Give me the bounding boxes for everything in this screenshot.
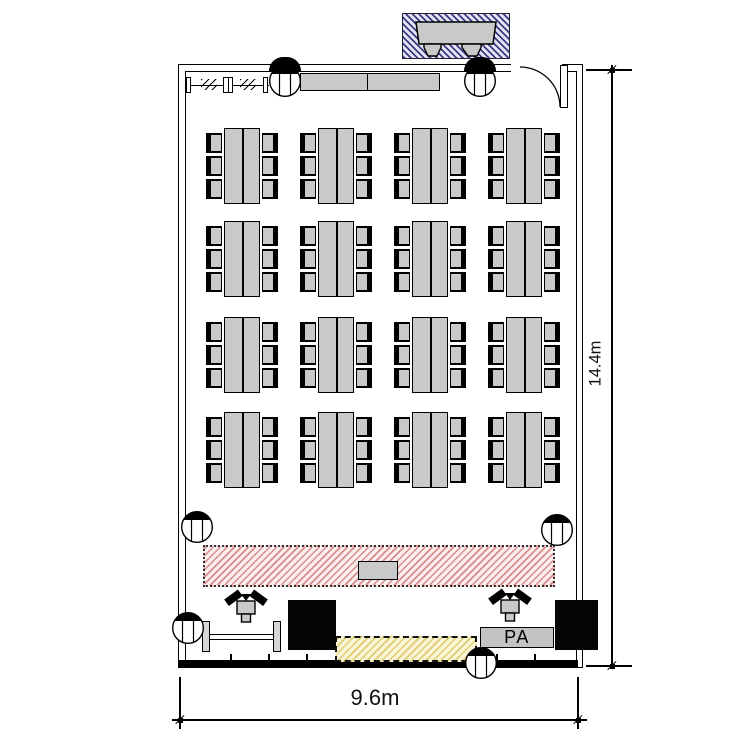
banquet-table <box>412 221 448 297</box>
chair <box>488 440 504 460</box>
chair <box>206 463 222 483</box>
chair <box>262 440 278 460</box>
chair <box>450 179 466 199</box>
round-fixture <box>171 611 205 645</box>
round-fixture <box>463 64 497 98</box>
chair <box>394 179 410 199</box>
screen-divider <box>367 74 368 90</box>
chair <box>262 179 278 199</box>
chair <box>394 440 410 460</box>
pa-system-box: PA <box>480 627 554 648</box>
chair <box>544 272 560 292</box>
chair <box>206 272 222 292</box>
chair <box>262 322 278 342</box>
chair <box>300 226 316 246</box>
chair <box>206 179 222 199</box>
wall-screen <box>300 73 440 91</box>
banquet-table <box>318 221 354 297</box>
chair <box>450 417 466 437</box>
partition-mid-post <box>223 77 233 93</box>
chair <box>544 417 560 437</box>
chair <box>262 368 278 388</box>
equipment-box <box>555 600 598 650</box>
table-group <box>224 317 260 393</box>
chair <box>450 440 466 460</box>
chair <box>356 226 372 246</box>
dim-endpoint <box>610 68 615 73</box>
table-group <box>412 221 448 297</box>
banquet-table <box>412 128 448 204</box>
chair <box>356 179 372 199</box>
table-group <box>412 128 448 204</box>
chair <box>488 249 504 269</box>
chair <box>262 249 278 269</box>
rack-bar <box>208 634 276 640</box>
equipment-box <box>288 600 336 650</box>
chair <box>488 133 504 153</box>
chair <box>488 463 504 483</box>
dim-endpoint <box>610 664 615 669</box>
chair <box>488 368 504 388</box>
stage-table <box>358 561 398 580</box>
chair <box>450 249 466 269</box>
chair <box>394 463 410 483</box>
dance-floor-zone <box>335 636 477 662</box>
chair <box>356 440 372 460</box>
chair <box>356 156 372 176</box>
chair <box>394 249 410 269</box>
chair <box>488 345 504 365</box>
chair <box>206 156 222 176</box>
chair <box>450 156 466 176</box>
chair <box>394 272 410 292</box>
partition-hatch-mark <box>240 79 256 90</box>
chair <box>262 156 278 176</box>
chair <box>300 156 316 176</box>
banquet-table <box>224 412 260 488</box>
table-group <box>224 128 260 204</box>
projector-equipment <box>402 13 510 59</box>
chair <box>544 322 560 342</box>
table-group <box>318 412 354 488</box>
chair <box>356 368 372 388</box>
chair <box>300 249 316 269</box>
chair <box>488 226 504 246</box>
chair <box>544 368 560 388</box>
table-group <box>506 128 542 204</box>
chair <box>300 417 316 437</box>
wall-tick <box>306 654 308 661</box>
pa-label: PA <box>504 627 530 648</box>
floor-plan: PA <box>0 0 750 750</box>
dim-line-height <box>611 65 612 667</box>
wall-tick <box>534 654 536 661</box>
chair <box>300 368 316 388</box>
chair <box>394 133 410 153</box>
table-group <box>412 317 448 393</box>
table-group <box>318 128 354 204</box>
round-fixture <box>180 510 214 544</box>
table-group <box>318 317 354 393</box>
chair <box>356 272 372 292</box>
chair <box>450 368 466 388</box>
door-swing-arc <box>514 60 566 112</box>
chair <box>356 345 372 365</box>
chair <box>300 179 316 199</box>
banquet-table <box>506 128 542 204</box>
partition-hatch-mark <box>201 79 217 90</box>
chair <box>300 272 316 292</box>
round-fixture <box>268 64 302 98</box>
chair <box>450 226 466 246</box>
chair <box>300 133 316 153</box>
chair <box>394 226 410 246</box>
round-fixture <box>540 513 574 547</box>
chair <box>450 133 466 153</box>
chair <box>262 417 278 437</box>
chair <box>544 249 560 269</box>
chair <box>544 440 560 460</box>
chair <box>262 133 278 153</box>
table-group <box>224 221 260 297</box>
chair <box>450 322 466 342</box>
chair <box>488 156 504 176</box>
table-group <box>506 412 542 488</box>
chair <box>394 322 410 342</box>
chair <box>300 463 316 483</box>
table-group <box>506 221 542 297</box>
chair <box>488 322 504 342</box>
chair <box>356 249 372 269</box>
chair <box>488 179 504 199</box>
wall-tick <box>268 654 270 661</box>
chair <box>206 226 222 246</box>
round-fixture <box>464 646 498 680</box>
chair <box>300 440 316 460</box>
wall-tick <box>230 654 232 661</box>
chair <box>356 322 372 342</box>
chair <box>206 417 222 437</box>
stage-speaker <box>488 588 532 624</box>
chair <box>450 345 466 365</box>
table-group <box>412 412 448 488</box>
chair <box>300 322 316 342</box>
dim-endpoint <box>576 718 581 723</box>
chair <box>544 345 560 365</box>
chair <box>300 345 316 365</box>
chair <box>262 345 278 365</box>
chair <box>394 156 410 176</box>
chair <box>206 133 222 153</box>
chair <box>206 249 222 269</box>
banquet-table <box>318 317 354 393</box>
chair <box>544 156 560 176</box>
table-group <box>506 317 542 393</box>
banquet-table <box>224 317 260 393</box>
chair <box>488 272 504 292</box>
chair <box>450 272 466 292</box>
rack-post <box>273 621 281 652</box>
chair <box>206 345 222 365</box>
banquet-table <box>224 128 260 204</box>
dim-line-width <box>172 719 587 720</box>
chair <box>262 226 278 246</box>
chair <box>544 226 560 246</box>
chair <box>450 463 466 483</box>
banquet-table <box>412 412 448 488</box>
chair <box>356 133 372 153</box>
chair <box>394 368 410 388</box>
chair <box>356 417 372 437</box>
chair <box>544 133 560 153</box>
banquet-table <box>224 221 260 297</box>
chair <box>206 368 222 388</box>
chair <box>206 440 222 460</box>
chair <box>206 322 222 342</box>
stage-speaker <box>224 589 268 625</box>
chair <box>394 345 410 365</box>
chair <box>356 463 372 483</box>
dim-endpoint <box>178 718 183 723</box>
chair <box>488 417 504 437</box>
banquet-table <box>506 317 542 393</box>
banquet-table <box>318 412 354 488</box>
room-width-label: 9.6m <box>330 685 420 711</box>
room-height-label: 14.4m <box>587 326 606 402</box>
table-group <box>318 221 354 297</box>
partition-end-post <box>186 77 191 93</box>
banquet-table <box>506 221 542 297</box>
chair <box>262 463 278 483</box>
table-group <box>224 412 260 488</box>
chair <box>394 417 410 437</box>
banquet-table <box>506 412 542 488</box>
chair <box>262 272 278 292</box>
chair <box>544 179 560 199</box>
chair <box>544 463 560 483</box>
banquet-table <box>318 128 354 204</box>
banquet-table <box>412 317 448 393</box>
